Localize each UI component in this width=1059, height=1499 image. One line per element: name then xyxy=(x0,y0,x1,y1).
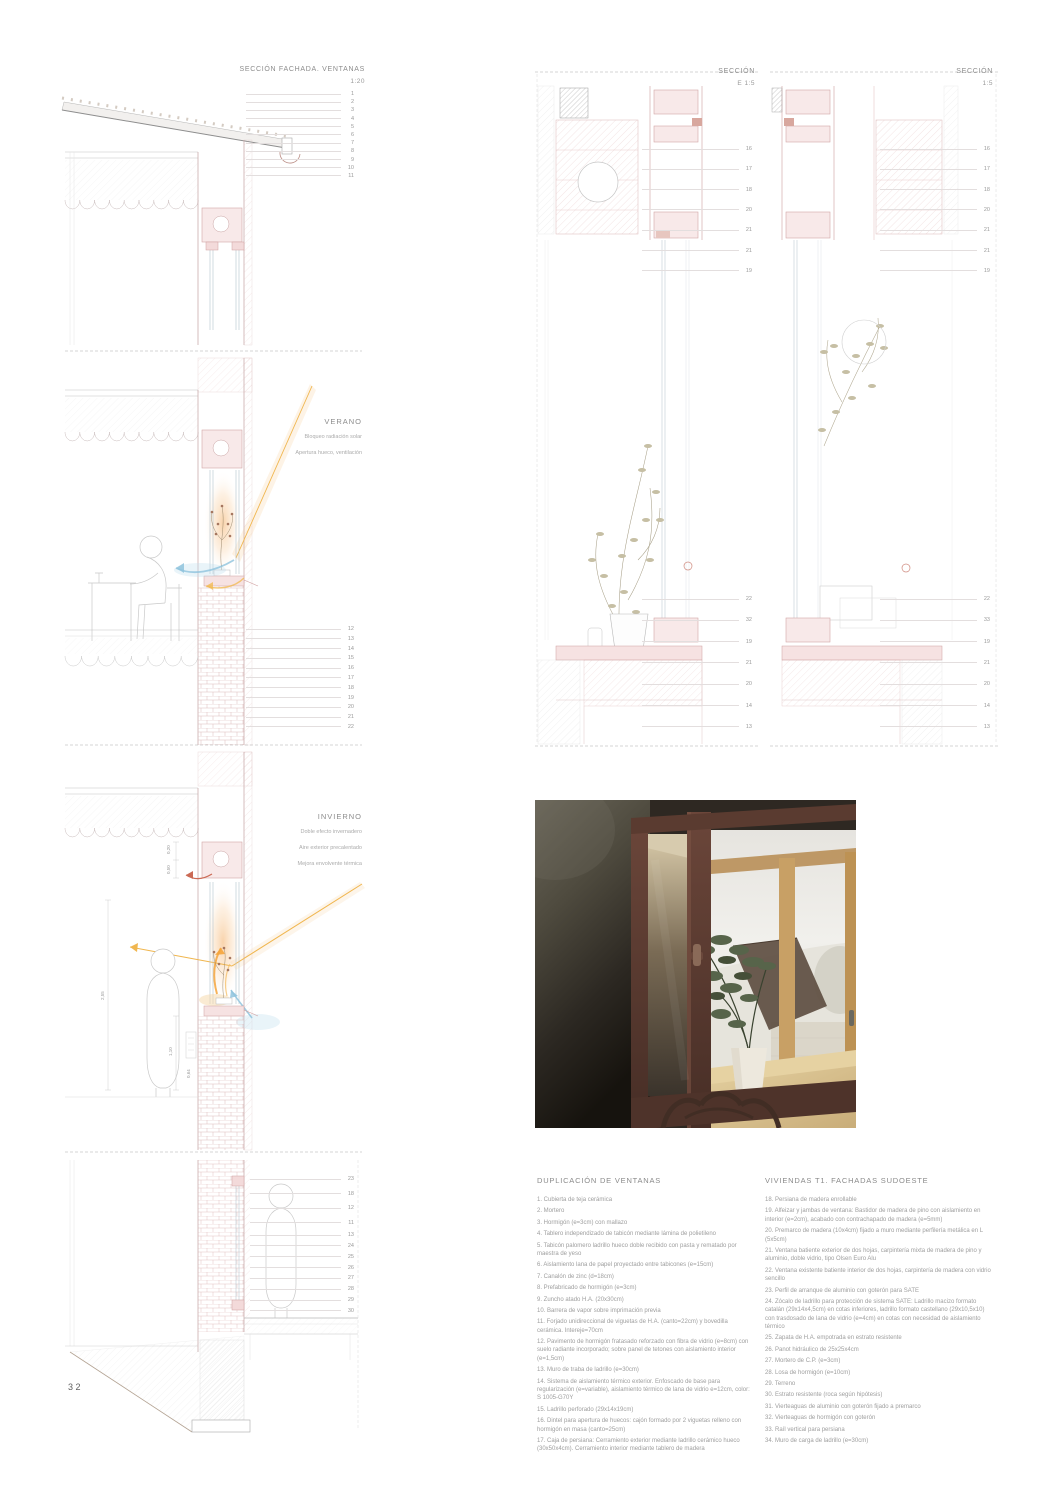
callouts-1-11: 1234567891011 xyxy=(246,91,354,179)
dim-255: 2,55 xyxy=(100,991,105,1000)
callout-row: 28 xyxy=(250,1286,354,1292)
callout-number: 3 xyxy=(341,107,354,113)
leader-line xyxy=(250,1310,341,1311)
callout-row: 21 xyxy=(642,248,752,254)
leader-line xyxy=(246,126,341,127)
dim-064: 0,64 xyxy=(186,1069,191,1078)
callout-row: 19 xyxy=(880,268,990,274)
callout-row: 11 xyxy=(246,173,354,179)
leader-line xyxy=(246,167,341,168)
callout-number: 13 xyxy=(341,1232,354,1238)
legend-item: 16. Dintel para apertura de huecos: cajó… xyxy=(537,1417,755,1434)
legend-item: 14. Sistema de aislamiento térmico exter… xyxy=(537,1378,755,1403)
callout-row: 21 xyxy=(880,248,990,254)
callout-number: 29 xyxy=(341,1297,354,1303)
leader-line xyxy=(246,143,341,144)
callout-row: 25 xyxy=(250,1254,354,1260)
callout-row: 6 xyxy=(246,132,354,138)
callouts-detail-r-top: 16171820212119 xyxy=(880,146,990,274)
invierno-note-2: Aire exterior precalentado xyxy=(240,840,362,856)
callout-number: 22 xyxy=(977,596,990,602)
invierno-section-drawing: 0,20 0,50 2,55 1,10 0,64 xyxy=(60,750,370,1155)
leader-line xyxy=(246,687,341,688)
leader-line xyxy=(642,705,739,706)
callout-row: 19 xyxy=(642,639,752,645)
callout-row: 21 xyxy=(642,227,752,233)
legend-item: 9. Zuncho atado H.A. (20x30cm) xyxy=(537,1296,755,1304)
callout-number: 16 xyxy=(739,146,752,152)
callout-row: 20 xyxy=(642,207,752,213)
callout-number: 11 xyxy=(341,173,354,179)
callout-number: 20 xyxy=(977,681,990,687)
callout-number: 13 xyxy=(341,636,354,642)
window-photo xyxy=(535,800,856,1128)
callout-row: 15 xyxy=(246,655,354,661)
invierno-note-3: Mejora envolvente térmica xyxy=(240,856,362,872)
leader-line xyxy=(250,1289,341,1290)
leader-line xyxy=(642,270,739,271)
callout-number: 21 xyxy=(739,248,752,254)
callout-row: 32 xyxy=(642,617,752,623)
legend-item: 26. Panot hidráulico de 25x25x4cm xyxy=(765,1346,995,1354)
callout-row: 16 xyxy=(642,146,752,152)
legend-item: 11. Forjado unidireccional de viguetas d… xyxy=(537,1318,755,1335)
leader-line xyxy=(880,620,977,621)
callout-number: 7 xyxy=(341,140,354,146)
leader-line xyxy=(642,662,739,663)
callout-row: 23 xyxy=(250,1176,354,1182)
verano-notes: Bloqueo radiación solar Apertura hueco, … xyxy=(240,429,362,461)
callout-number: 21 xyxy=(739,227,752,233)
leader-line xyxy=(250,1222,341,1223)
legend-item: 22. Ventana existente batiente interior … xyxy=(765,1267,995,1284)
leader-line xyxy=(642,726,739,727)
legend-item: 8. Prefabricado de hormigón (e=3cm) xyxy=(537,1284,755,1292)
leader-line xyxy=(642,599,739,600)
callout-number: 18 xyxy=(739,187,752,193)
legend-item: 33. Raíl vertical para persiana xyxy=(765,1426,995,1434)
callout-number: 19 xyxy=(739,639,752,645)
dim-020: 0,20 xyxy=(166,845,171,854)
legend-item: 27. Mortero de C.P. (e=3cm) xyxy=(765,1357,995,1365)
callout-number: 21 xyxy=(739,660,752,666)
leader-line xyxy=(642,620,739,621)
leader-line xyxy=(880,662,977,663)
callout-number: 22 xyxy=(341,724,354,730)
callout-number: 23 xyxy=(341,1176,354,1182)
callout-row: 19 xyxy=(246,695,354,701)
leader-line xyxy=(246,726,341,727)
callouts-12-22: 1213141516171819202122 xyxy=(246,626,354,730)
legend-item: 19. Alfeizar y jambas de ventana: Bastid… xyxy=(765,1207,995,1224)
legend-item: 18. Persiana de madera enrollable xyxy=(765,1196,995,1204)
callout-row: 11 xyxy=(250,1220,354,1226)
callout-number: 14 xyxy=(977,703,990,709)
callout-number: 11 xyxy=(341,1220,354,1226)
detail-e-title: SECCIÓN xyxy=(640,66,755,78)
callouts-terrain-b: 1324252627282930 xyxy=(250,1232,354,1314)
leader-line xyxy=(880,641,977,642)
callout-number: 27 xyxy=(341,1275,354,1281)
callout-number: 4 xyxy=(341,116,354,122)
callout-row: 18 xyxy=(246,685,354,691)
legend-item: 31. Vierteaguas de aluminio con goterón … xyxy=(765,1403,995,1411)
leader-line xyxy=(250,1267,341,1268)
leader-line xyxy=(880,684,977,685)
leader-line xyxy=(250,1235,341,1236)
dim-110: 1,10 xyxy=(168,1047,173,1056)
callouts-detail-e-bottom: 22321921201413 xyxy=(642,596,752,730)
callout-row: 13 xyxy=(246,636,354,642)
callout-number: 6 xyxy=(341,132,354,138)
leader-line xyxy=(246,118,341,119)
leader-line xyxy=(246,102,341,103)
leader-line xyxy=(880,209,977,210)
callout-number: 25 xyxy=(341,1254,354,1260)
legend-item: 29. Terreno xyxy=(765,1380,995,1388)
legend-item: 10. Barrera de vapor sobre imprimación p… xyxy=(537,1307,755,1315)
callout-number: 20 xyxy=(341,704,354,710)
callout-row: 18 xyxy=(642,187,752,193)
legend-item: 28. Losa de hormigón (e=10cm) xyxy=(765,1369,995,1377)
facade-section-title: SECCIÓN FACHADA. VENTANAS xyxy=(150,64,365,76)
callout-number: 2 xyxy=(341,99,354,105)
callout-number: 13 xyxy=(977,724,990,730)
leader-line xyxy=(250,1193,341,1194)
callout-number: 20 xyxy=(977,207,990,213)
callout-row: 10 xyxy=(246,165,354,171)
leader-line xyxy=(642,189,739,190)
callout-row: 18 xyxy=(880,187,990,193)
callout-number: 33 xyxy=(977,617,990,623)
legend-item: 12. Pavimento de hormigón fratasado refo… xyxy=(537,1338,755,1363)
callout-number: 19 xyxy=(739,268,752,274)
verano-label: VERANO xyxy=(240,417,362,426)
callout-number: 28 xyxy=(341,1286,354,1292)
callout-number: 21 xyxy=(977,227,990,233)
callouts-detail-r-bottom: 22331921201413 xyxy=(880,596,990,730)
verano-note-2: Apertura hueco, ventilación xyxy=(240,445,362,461)
leader-line xyxy=(246,94,341,95)
callout-number: 13 xyxy=(739,724,752,730)
callout-number: 19 xyxy=(977,639,990,645)
callout-number: 15 xyxy=(341,655,354,661)
leader-line xyxy=(246,151,341,152)
callout-number: 18 xyxy=(977,187,990,193)
legend-item: 2. Mortero xyxy=(537,1207,755,1215)
leader-line xyxy=(250,1245,341,1246)
legend-item: 5. Tabicón palomero ladrillo hueco doble… xyxy=(537,1242,755,1259)
callout-row: 21 xyxy=(246,714,354,720)
verano-note-1: Bloqueo radiación solar xyxy=(240,429,362,445)
legend-item: 7. Canalón de zinc (d=18cm) xyxy=(537,1273,755,1281)
leader-line xyxy=(246,638,341,639)
leader-line xyxy=(246,629,341,630)
leader-line xyxy=(880,189,977,190)
callout-row: 21 xyxy=(880,227,990,233)
legend-item: 17. Caja de persiana: Cerramiento exteri… xyxy=(537,1437,755,1454)
callout-row: 30 xyxy=(250,1308,354,1314)
leader-line xyxy=(246,677,341,678)
callout-row: 12 xyxy=(250,1205,354,1211)
callout-number: 8 xyxy=(341,148,354,154)
callout-row: 4 xyxy=(246,116,354,122)
legend-left-items: 1. Cubierta de teja cerámica2. Mortero3.… xyxy=(537,1196,755,1454)
leader-line xyxy=(880,599,977,600)
invierno-note-1: Doble efecto invernadero xyxy=(240,824,362,840)
leader-line xyxy=(880,270,977,271)
callout-row: 9 xyxy=(246,157,354,163)
callout-row: 20 xyxy=(880,207,990,213)
legend-viviendas: VIVIENDAS T1. FACHADAS SUDOESTE 18. Pers… xyxy=(765,1176,995,1448)
legend-item: 13. Muro de traba de ladrillo (e=30cm) xyxy=(537,1366,755,1374)
callout-row: 17 xyxy=(880,166,990,172)
leader-line xyxy=(246,110,341,111)
leader-line xyxy=(880,169,977,170)
callout-number: 30 xyxy=(341,1308,354,1314)
callout-number: 17 xyxy=(739,166,752,172)
callout-number: 21 xyxy=(977,660,990,666)
leader-line xyxy=(250,1256,341,1257)
callout-number: 19 xyxy=(977,268,990,274)
leader-line xyxy=(246,175,341,176)
callout-row: 7 xyxy=(246,140,354,146)
leader-line xyxy=(642,684,739,685)
leader-line xyxy=(642,169,739,170)
legend-right-items: 18. Persiana de madera enrollable19. Alf… xyxy=(765,1196,995,1445)
callout-row: 12 xyxy=(246,626,354,632)
leader-line xyxy=(642,641,739,642)
leader-line xyxy=(246,658,341,659)
leader-line xyxy=(880,726,977,727)
callout-row: 24 xyxy=(250,1243,354,1249)
leader-line xyxy=(246,707,341,708)
callout-row: 20 xyxy=(246,704,354,710)
callout-row: 14 xyxy=(642,703,752,709)
callout-row: 14 xyxy=(880,703,990,709)
callout-number: 32 xyxy=(739,617,752,623)
leader-line xyxy=(880,705,977,706)
callout-row: 22 xyxy=(642,596,752,602)
legend-item: 4. Tablero independizado de tabicón medi… xyxy=(537,1230,755,1238)
legend-item: 6. Aislamiento lana de papel proyectado … xyxy=(537,1261,755,1269)
legend-item: 30. Estrato resistente (roca según hipót… xyxy=(765,1391,995,1399)
callout-row: 13 xyxy=(642,724,752,730)
callout-row: 16 xyxy=(246,665,354,671)
callout-row: 18 xyxy=(250,1191,354,1197)
legend-item: 32. Vierteaguas de hormigón con goterón xyxy=(765,1414,995,1422)
legend-right-title: VIVIENDAS T1. FACHADAS SUDOESTE xyxy=(765,1176,995,1185)
callout-number: 18 xyxy=(341,1191,354,1197)
callout-number: 1 xyxy=(341,91,354,97)
legend-item: 1. Cubierta de teja cerámica xyxy=(537,1196,755,1204)
leader-line xyxy=(246,717,341,718)
legend-item: 24. Zócalo de ladrillo para protección d… xyxy=(765,1298,995,1332)
detail-r-scale: 1:5 xyxy=(878,78,993,89)
callout-row: 33 xyxy=(880,617,990,623)
leader-line xyxy=(642,209,739,210)
legend-item: 23. Perfil de arranque de aluminio con g… xyxy=(765,1287,995,1295)
leader-line xyxy=(642,250,739,251)
legend-item: 25. Zapata de H.A. empotrada en estrato … xyxy=(765,1334,995,1342)
leader-line xyxy=(250,1208,341,1209)
leader-line xyxy=(880,250,977,251)
callout-row: 3 xyxy=(246,107,354,113)
callout-row: 5 xyxy=(246,124,354,130)
callout-row: 17 xyxy=(246,675,354,681)
callout-row: 14 xyxy=(246,646,354,652)
callout-row: 21 xyxy=(880,660,990,666)
callout-row: 29 xyxy=(250,1297,354,1303)
leader-line xyxy=(246,159,341,160)
callout-number: 17 xyxy=(341,675,354,681)
leader-line xyxy=(250,1300,341,1301)
callout-row: 20 xyxy=(642,681,752,687)
callout-row: 27 xyxy=(250,1275,354,1281)
leader-line xyxy=(642,230,739,231)
callout-row: 22 xyxy=(880,596,990,602)
detail-r-title: SECCIÓN xyxy=(878,66,993,78)
leader-line xyxy=(250,1179,341,1180)
legend-duplicacion: DUPLICACIÓN DE VENTANAS 1. Cubierta de t… xyxy=(537,1176,755,1457)
callout-number: 26 xyxy=(341,1265,354,1271)
callout-row: 19 xyxy=(642,268,752,274)
callout-number: 17 xyxy=(977,166,990,172)
leader-line xyxy=(880,149,977,150)
callout-row: 8 xyxy=(246,148,354,154)
callout-number: 22 xyxy=(739,596,752,602)
callout-row: 13 xyxy=(880,724,990,730)
leader-line xyxy=(880,230,977,231)
callout-number: 21 xyxy=(341,714,354,720)
callout-number: 10 xyxy=(341,165,354,171)
invierno-label: INVIERNO xyxy=(240,812,362,821)
callout-number: 20 xyxy=(739,207,752,213)
callout-number: 14 xyxy=(739,703,752,709)
legend-item: 20. Premarco de madera (10x4cm) fijado a… xyxy=(765,1227,995,1244)
callouts-terrain-a: 23181211 xyxy=(250,1176,354,1226)
leader-line xyxy=(250,1278,341,1279)
callout-row: 20 xyxy=(880,681,990,687)
dim-050: 0,50 xyxy=(166,865,171,874)
legend-item: 21. Ventana batiente exterior de dos hoj… xyxy=(765,1247,995,1264)
callout-number: 24 xyxy=(341,1243,354,1249)
callout-row: 2 xyxy=(246,99,354,105)
invierno-notes: Doble efecto invernadero Aire exterior p… xyxy=(240,824,362,872)
leader-line xyxy=(642,149,739,150)
callout-number: 21 xyxy=(977,248,990,254)
callout-row: 1 xyxy=(246,91,354,97)
callout-row: 19 xyxy=(880,639,990,645)
callout-row: 16 xyxy=(880,146,990,152)
callout-row: 17 xyxy=(642,166,752,172)
callout-row: 13 xyxy=(250,1232,354,1238)
legend-item: 3. Hormigón (e=3cm) con mallazo xyxy=(537,1219,755,1227)
leader-line xyxy=(246,668,341,669)
legend-left-title: DUPLICACIÓN DE VENTANAS xyxy=(537,1176,755,1185)
callouts-detail-e-top: 16171820212119 xyxy=(642,146,752,274)
callout-row: 26 xyxy=(250,1265,354,1271)
callout-number: 16 xyxy=(341,665,354,671)
legend-item: 34. Muro de carga de ladrillo (e=30cm) xyxy=(765,1437,995,1445)
leader-line xyxy=(246,134,341,135)
callout-number: 5 xyxy=(341,124,354,130)
leader-line xyxy=(246,648,341,649)
leader-line xyxy=(246,697,341,698)
callout-number: 9 xyxy=(341,157,354,163)
callout-number: 12 xyxy=(341,626,354,632)
callout-number: 14 xyxy=(341,646,354,652)
callout-number: 19 xyxy=(341,695,354,701)
page-number: 32 xyxy=(68,1382,83,1392)
callout-row: 22 xyxy=(246,724,354,730)
portfolio-sheet: SECCIÓN FACHADA. VENTANAS 1:20 123456789… xyxy=(0,0,1059,1499)
callout-number: 20 xyxy=(739,681,752,687)
legend-item: 15. Ladrillo perforado (29x14x19cm) xyxy=(537,1406,755,1414)
callout-number: 12 xyxy=(341,1205,354,1211)
callout-number: 18 xyxy=(341,685,354,691)
detail-e-scale: E 1:5 xyxy=(640,78,755,89)
callout-row: 21 xyxy=(642,660,752,666)
callout-number: 16 xyxy=(977,146,990,152)
